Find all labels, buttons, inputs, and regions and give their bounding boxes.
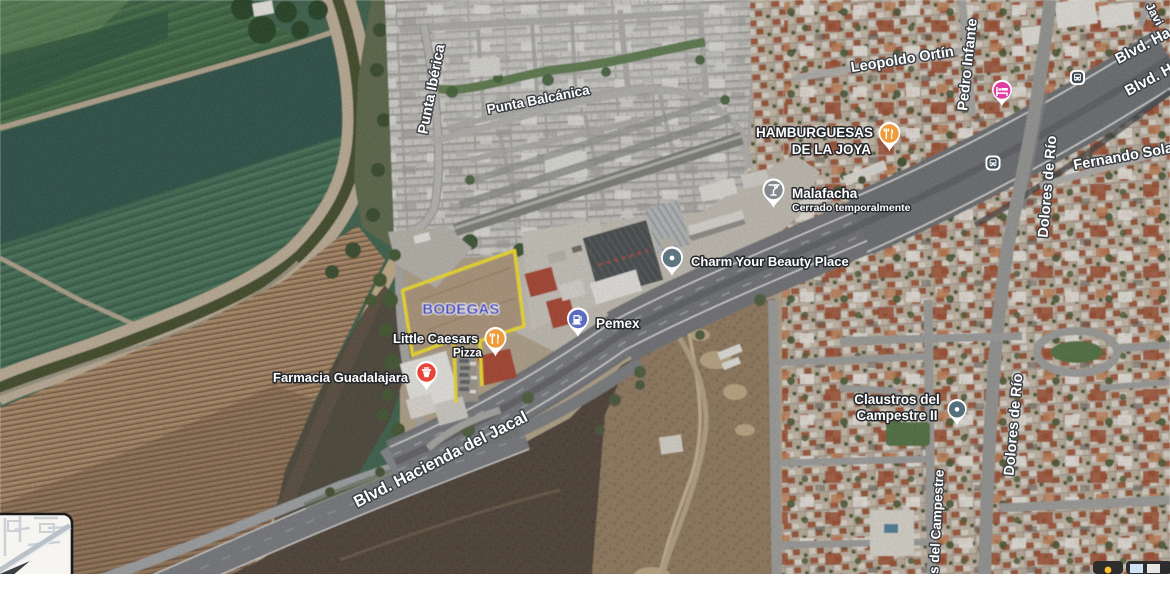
svg-text:Charm Your Beauty Place: Charm Your Beauty Place — [691, 254, 849, 269]
svg-text:Cerrado temporalmente: Cerrado temporalmente — [792, 202, 911, 214]
svg-text:Pemex: Pemex — [596, 316, 640, 331]
svg-text:Farmacia Guadalajara: Farmacia Guadalajara — [273, 370, 409, 385]
svg-text:DE LA JOYA: DE LA JOYA — [792, 142, 872, 157]
svg-text:HAMBURGUESAS: HAMBURGUESAS — [756, 125, 873, 140]
svg-text:Malafacha: Malafacha — [792, 186, 858, 201]
svg-text:Claustros del: Claustros del — [854, 392, 940, 407]
svg-text:Campestre II: Campestre II — [856, 408, 937, 423]
svg-text:Little Caesars: Little Caesars — [393, 331, 478, 346]
svg-text:Pizza: Pizza — [453, 348, 482, 360]
